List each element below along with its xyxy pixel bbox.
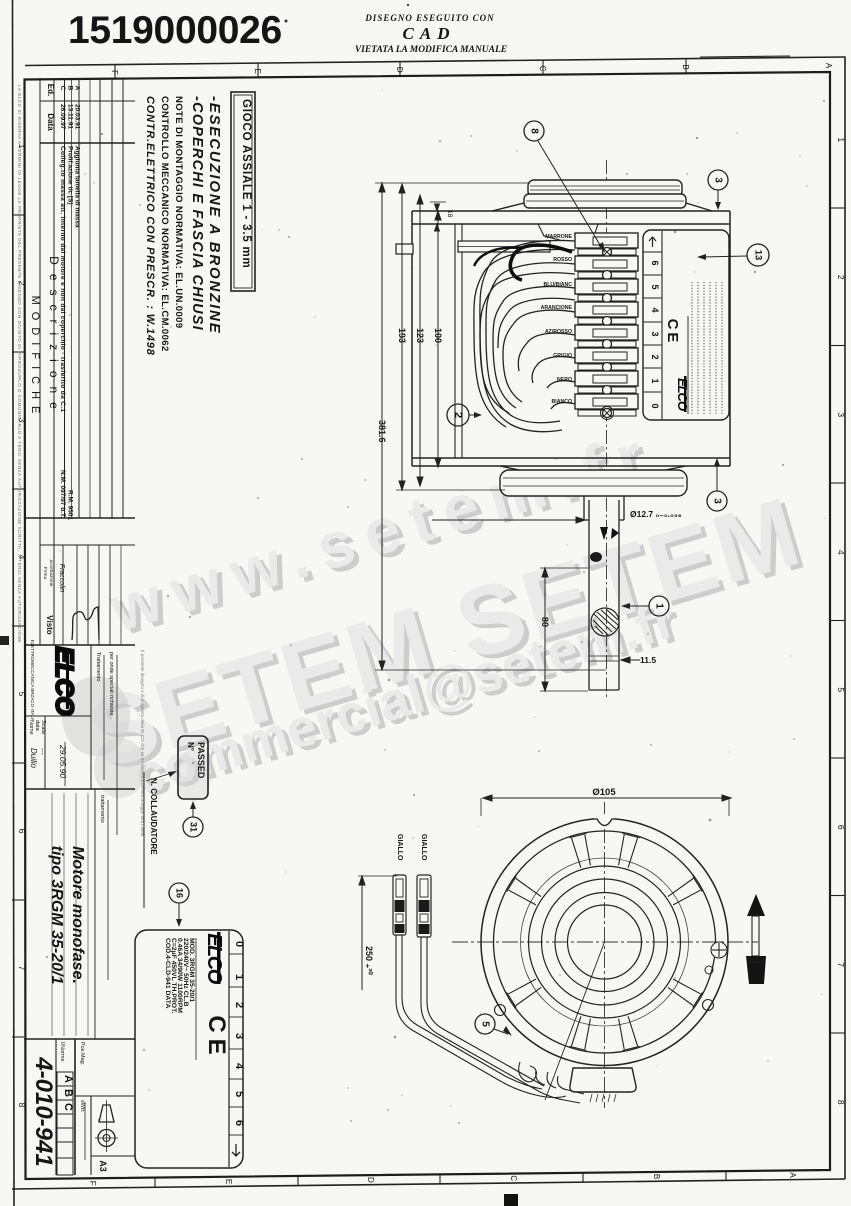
svg-text:B: B	[67, 86, 74, 91]
svg-text:250 ₊³⁰: 250 ₊³⁰	[364, 946, 374, 975]
svg-text:I/Norme: I/Norme	[59, 1042, 65, 1062]
svg-text:NOTE DI MONTAGGIO NORMATIVA:: NOTE DI MONTAGGIO NORMATIVA: EL.UN.0009	[173, 96, 184, 329]
svg-text:80: 80	[540, 617, 550, 627]
svg-text:Firma: Firma	[42, 567, 48, 580]
svg-text:COD.4-CLD-941 DATA: COD.4-CLD-941 DATA	[164, 938, 171, 1008]
svg-text:16: 16	[175, 888, 185, 898]
svg-text:F: F	[88, 1181, 97, 1186]
svg-text:4: 4	[836, 550, 846, 555]
svg-text:3: 3	[711, 498, 722, 504]
svg-text:2: 2	[650, 354, 660, 359]
svg-text:N. COLLAUDATORE: N. COLLAUDATORE	[149, 778, 158, 855]
svg-text:ELCO: ELCO	[50, 646, 78, 716]
svg-text:N.M. 097/97 b.T.: N.M. 097/97 b.T.	[59, 470, 66, 518]
svg-text:2: 2	[233, 1002, 245, 1008]
svg-text:LA ELCO SI RISERVA A TERMINI D: LA ELCO SI RISERVA A TERMINI DI LEGGE LA…	[17, 85, 22, 643]
svg-text:7: 7	[836, 962, 846, 967]
svg-text:2: 2	[452, 412, 464, 418]
svg-text:BLU/BIANC: BLU/BIANC	[543, 282, 572, 288]
svg-text:GIOCO ASSIALE 1 - 3.5 mm: GIOCO ASSIALE 1 - 3.5 mm	[240, 99, 252, 269]
svg-text:8: 8	[17, 1103, 27, 1108]
svg-text:B: B	[681, 64, 690, 69]
svg-text:A: A	[788, 1172, 797, 1178]
svg-text:E: E	[253, 69, 262, 74]
svg-text:1: 1	[836, 137, 846, 142]
svg-text:-ESECUZIONE A BRONZINE: -ESECUZIONE A BRONZINE	[206, 96, 223, 335]
svg-text:1519000026: 1519000026	[68, 9, 282, 52]
svg-text:123: 123	[415, 328, 425, 343]
svg-text:5: 5	[650, 284, 660, 289]
svg-text:7: 7	[17, 966, 27, 971]
svg-text:CE: CE	[203, 1015, 230, 1060]
svg-text:0: 0	[233, 941, 245, 947]
svg-text:GIALLO: GIALLO	[396, 834, 403, 861]
svg-text:13.11.91: 13.11.91	[67, 104, 74, 129]
svg-text:A: A	[74, 86, 81, 91]
svg-text:---: ---	[38, 748, 45, 756]
svg-text:B: B	[652, 1174, 661, 1179]
svg-text:11.5: 11.5	[640, 655, 656, 665]
svg-text:Data: Data	[46, 113, 55, 131]
svg-text:CONTR.ELETTRICO CON PRESCR. :: CONTR.ELETTRICO CON PRESCR. : W.1498	[144, 96, 156, 356]
svg-text:C: C	[509, 1175, 518, 1181]
svg-text:3: 3	[836, 412, 846, 417]
svg-text:100: 100	[433, 328, 443, 343]
svg-text:ELETTROMECCANICA BRZACO-ITALY: ELETTROMECCANICA BRZACO-ITALY	[30, 640, 35, 721]
svg-text:Duilio: Duilio	[29, 748, 38, 769]
svg-text:26.09.97: 26.09.97	[59, 104, 66, 130]
svg-text:AZ/ROSSO: AZ/ROSSO	[545, 329, 572, 335]
svg-text:Aggiunta lamella di massa: Aggiunta lamella di massa	[74, 146, 81, 228]
svg-text:5: 5	[836, 687, 846, 692]
svg-text:3: 3	[650, 331, 660, 336]
svg-text:sWfr.: sWfr.	[79, 1100, 85, 1113]
svg-text:ELCO: ELCO	[203, 933, 225, 985]
svg-text:Ø12.7 ₀₋₀.₀₅₆: Ø12.7 ₀₋₀.₀₅₆	[630, 509, 682, 519]
svg-text:Nome: Nome	[28, 720, 34, 735]
svg-text:4: 4	[650, 307, 660, 312]
svg-text:4: 4	[233, 1063, 245, 1070]
svg-text:Scala: Scala	[40, 720, 46, 735]
svg-text:193: 193	[397, 328, 407, 343]
svg-text:CONTROLLO MECCANICO NORMATIVA:: CONTROLLO MECCANICO NORMATIVA: EL.CM.006…	[159, 96, 170, 352]
svg-text:5: 5	[479, 1021, 490, 1027]
svg-text:D: D	[366, 1177, 375, 1183]
svg-text:PASSED: PASSED	[196, 742, 206, 779]
svg-text:CAD: CAD	[403, 24, 456, 43]
svg-text:NERO: NERO	[557, 377, 572, 383]
svg-text:MARRONE: MARRONE	[545, 234, 572, 240]
svg-text:B: B	[62, 1089, 74, 1097]
svg-text:BIANCO: BIANCO	[552, 399, 572, 405]
svg-text:Ø105: Ø105	[592, 787, 616, 798]
svg-text:per onde speciali richieste: per onde speciali richieste	[108, 652, 114, 716]
svg-text:A3: A3	[98, 1160, 108, 1172]
svg-text:Prolif.azione t/c [S]: Prolif.azione t/c [S]	[67, 146, 74, 205]
svg-text:381.6: 381.6	[377, 420, 387, 443]
svg-text:R.M. 9501: R.M. 9501	[67, 490, 74, 520]
svg-text:6: 6	[650, 260, 660, 265]
svg-text:31: 31	[189, 822, 199, 832]
svg-text:C: C	[62, 1103, 74, 1111]
svg-text:GRIGIO: GRIGIO	[553, 353, 572, 359]
svg-text:D: D	[395, 67, 404, 73]
svg-text:C: C	[538, 66, 547, 72]
svg-text:Fraccolin: Fraccolin	[58, 564, 65, 593]
svg-text:ARANCIONE: ARANCIONE	[541, 305, 573, 311]
svg-text:5: 5	[17, 692, 27, 697]
svg-text:1: 1	[653, 603, 664, 609]
svg-text:C: C	[59, 86, 66, 91]
svg-text:6: 6	[17, 829, 27, 834]
svg-text:4-010-941: 4-010-941	[30, 1056, 57, 1166]
svg-text:VIETATA LA MODIFICA MANUALE: VIETATA LA MODIFICA MANUALE	[355, 45, 507, 55]
svg-text:6: 6	[836, 825, 846, 830]
svg-text:tipo 3RGM 35-20/1: tipo 3RGM 35-20/1	[48, 846, 65, 985]
svg-text:A: A	[824, 63, 833, 69]
svg-text:Descrizione: Descrizione	[47, 256, 61, 418]
svg-text:N°: N°	[186, 742, 195, 751]
svg-text:3: 3	[712, 177, 723, 183]
svg-text:18: 18	[446, 210, 453, 218]
svg-text:13: 13	[752, 250, 763, 261]
svg-text:Motore monofase.: Motore monofase.	[69, 846, 86, 984]
svg-text:Ed.: Ed.	[46, 84, 55, 96]
svg-text:3: 3	[233, 1033, 245, 1039]
svg-text:Pos.Mag.: Pos.Mag.	[79, 1042, 85, 1066]
svg-text:F: F	[110, 70, 119, 75]
svg-text:DISEGNO ESEGUITO CON: DISEGNO ESEGUITO CON	[364, 13, 494, 23]
svg-text:accettazione: accettazione	[48, 560, 54, 587]
svg-text:A: A	[62, 1075, 74, 1083]
svg-text:GIALLO: GIALLO	[420, 834, 427, 861]
svg-text:20.03.91: 20.03.91	[74, 104, 81, 130]
svg-text:5: 5	[233, 1091, 245, 1097]
svg-text:Visto: Visto	[45, 615, 54, 635]
svg-text:8: 8	[528, 128, 539, 134]
svg-text:data: data	[34, 720, 40, 732]
svg-text:CE: CE	[664, 319, 681, 346]
svg-text:6: 6	[233, 1120, 245, 1126]
svg-text:1: 1	[233, 974, 245, 980]
svg-text:Colleg.to massa att. interno d: Colleg.to massa att. interno dal motore …	[59, 146, 66, 412]
svg-text:0: 0	[650, 403, 660, 408]
svg-text:E: E	[224, 1179, 233, 1184]
svg-text:2: 2	[836, 275, 846, 280]
svg-text:ROSSO: ROSSO	[553, 257, 572, 263]
svg-text:trattamento: trattamento	[99, 795, 105, 823]
svg-text:-COPERCHI E FASCIA CHIUSI: -COPERCHI E FASCIA CHIUSI	[189, 96, 205, 331]
svg-text:1: 1	[650, 378, 660, 383]
svg-text:Trattamento: Trattamento	[95, 652, 101, 681]
svg-text:29.05.90: 29.05.90	[58, 744, 68, 778]
svg-text:8: 8	[836, 1100, 846, 1105]
svg-text:MODIFICHE: MODIFICHE	[29, 296, 41, 421]
